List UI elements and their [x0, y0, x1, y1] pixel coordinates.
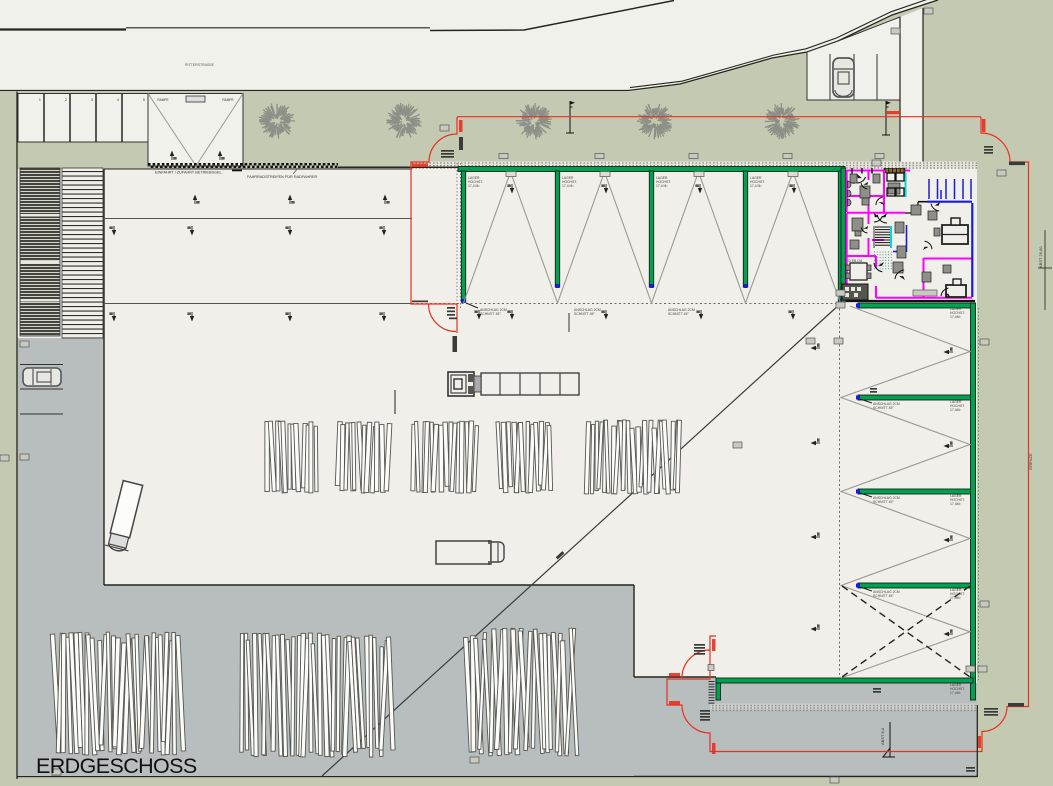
svg-text:RAMPE: RAMPE [222, 98, 233, 102]
svg-text:17,4 M²: 17,4 M² [750, 184, 762, 188]
svg-text:17,4M²: 17,4M² [950, 596, 961, 600]
svg-text:SCHNITT 45°: SCHNITT 45° [873, 406, 894, 410]
svg-text:SCHNITT 45°: SCHNITT 45° [873, 594, 894, 598]
svg-text:RAMPE: RAMPE [157, 98, 168, 102]
svg-text:RITTERSTRASSE: RITTERSTRASSE [185, 63, 215, 67]
svg-text:ERDGESCHOSS: ERDGESCHOSS [36, 754, 197, 778]
svg-text:ABST 26,00: ABST 26,00 [1038, 246, 1043, 268]
svg-text:SCHNITT 45°: SCHNITT 45° [480, 312, 501, 316]
svg-text:SCHNITT 45°: SCHNITT 45° [574, 312, 595, 316]
svg-text:17,4 M²: 17,4 M² [468, 184, 480, 188]
svg-text:EINFAHRT / ZUFAHRT BETRIEBSGEL: EINFAHRT / ZUFAHRT BETRIEBSGEL. [155, 171, 223, 175]
svg-text:17,4 M²: 17,4 M² [562, 184, 574, 188]
svg-text:FAHRRADSTREIFEN FÜR RADFAHRER: FAHRRADSTREIFEN FÜR RADFAHRER [247, 175, 318, 179]
svg-text:17,4M²: 17,4M² [950, 691, 961, 695]
svg-text:O-EB-OA: O-EB-OA [848, 259, 863, 263]
svg-text:17,4 M²: 17,4 M² [656, 184, 668, 188]
svg-text:SCHNITT 45°: SCHNITT 45° [873, 500, 894, 504]
svg-text:GRENZE: GRENZE [1028, 453, 1033, 470]
svg-text:17,4M²: 17,4M² [950, 408, 961, 412]
svg-text:SCHNITT 45°: SCHNITT 45° [668, 312, 689, 316]
svg-text:17,4M²: 17,4M² [950, 502, 961, 506]
svg-text:ABST 8,0: ABST 8,0 [880, 727, 885, 745]
svg-text:17,4M²: 17,4M² [950, 315, 961, 319]
